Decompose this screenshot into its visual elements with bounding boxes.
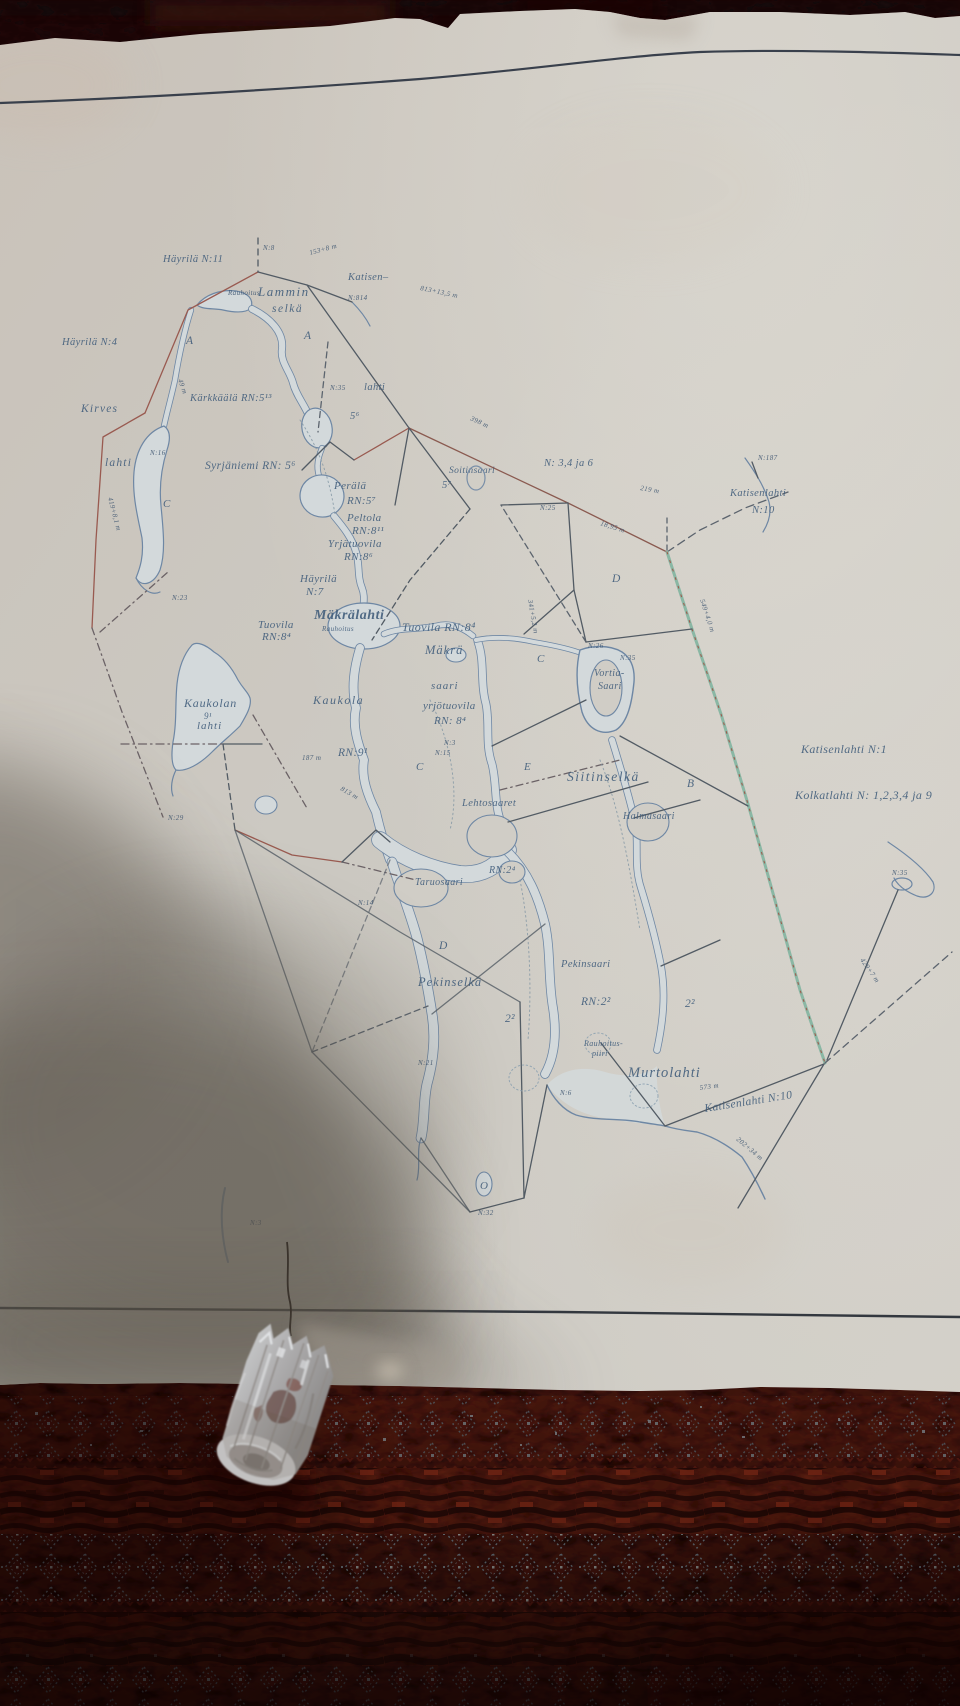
svg-text:Pekinsaari: Pekinsaari (560, 959, 611, 970)
svg-text:Pekinselkä: Pekinselkä (417, 975, 482, 989)
svg-text:Murtolahti: Murtolahti (627, 1065, 701, 1081)
svg-text:Tuovila: Tuovila (258, 619, 294, 631)
svg-text:Kaukola: Kaukola (312, 693, 364, 707)
svg-text:N:3: N:3 (443, 739, 456, 747)
svg-text:D: D (438, 940, 448, 952)
svg-text:E: E (523, 761, 531, 773)
svg-text:RN:5⁷: RN:5⁷ (346, 495, 376, 507)
svg-text:lahti: lahti (197, 720, 222, 732)
svg-text:Vortia-: Vortia- (594, 668, 625, 679)
svg-text:Perälä: Perälä (333, 480, 366, 492)
svg-text:187 m: 187 m (302, 754, 321, 762)
svg-text:N:14: N:14 (357, 899, 374, 907)
svg-text:Kolkatlahti N: 1,2,3,4 ja 9: Kolkatlahti N: 1,2,3,4 ja 9 (794, 788, 932, 802)
svg-text:Katisen–: Katisen– (347, 272, 389, 283)
svg-text:C: C (537, 653, 545, 665)
svg-text:C: C (416, 761, 424, 773)
svg-text:Lehtosaaret: Lehtosaaret (461, 798, 517, 809)
svg-text:piiri: piiri (591, 1049, 608, 1058)
svg-text:RN:2²: RN:2² (580, 996, 611, 1008)
svg-text:RN:8⁶: RN:8⁶ (343, 551, 373, 563)
svg-text:N:25: N:25 (539, 504, 556, 512)
svg-text:RN:8⁴: RN:8⁴ (261, 631, 291, 643)
svg-text:C: C (163, 498, 171, 510)
svg-text:Taruosaari: Taruosaari (415, 877, 463, 888)
svg-text:N:814: N:814 (347, 294, 368, 302)
svg-text:saari: saari (431, 680, 459, 692)
svg-text:Syrjäniemi RN: 5⁶: Syrjäniemi RN: 5⁶ (205, 460, 296, 472)
svg-text:Lammin: Lammin (257, 284, 310, 299)
svg-text:lahti: lahti (364, 382, 385, 393)
svg-text:Siitinselkä: Siitinselkä (567, 769, 640, 784)
svg-text:Kirves: Kirves (80, 403, 118, 415)
svg-text:Kaukolan: Kaukolan (183, 696, 237, 710)
svg-text:2²: 2² (505, 1013, 515, 1025)
svg-text:N:8: N:8 (262, 244, 275, 252)
svg-text:Häyrilä N:4: Häyrilä N:4 (61, 337, 118, 348)
svg-text:Katisenlahti: Katisenlahti (729, 488, 786, 499)
svg-text:N:26: N:26 (587, 642, 604, 650)
svg-text:N:7: N:7 (305, 586, 324, 598)
svg-text:yrjötuovila: yrjötuovila (422, 700, 476, 712)
svg-text:Mäkrälahti: Mäkrälahti (313, 608, 384, 623)
svg-text:N:32: N:32 (477, 1209, 494, 1217)
svg-text:B: B (687, 778, 694, 790)
svg-text:Halmasaari: Halmasaari (622, 811, 675, 822)
svg-text:N:29: N:29 (167, 814, 184, 822)
svg-text:N:35: N:35 (891, 869, 908, 877)
svg-text:Mäkrä: Mäkrä (424, 643, 463, 657)
svg-text:Häyrilä: Häyrilä (299, 573, 337, 585)
svg-text:Kärkkäälä RN:5¹³: Kärkkäälä RN:5¹³ (189, 393, 272, 404)
svg-text:Häyrilä N:11: Häyrilä N:11 (162, 254, 223, 265)
svg-text:A: A (185, 335, 194, 347)
svg-text:5⁷: 5⁷ (442, 480, 452, 491)
svg-text:5⁶: 5⁶ (350, 411, 360, 422)
svg-text:D: D (611, 573, 621, 585)
svg-text:N: 3,4 ja 6: N: 3,4 ja 6 (543, 458, 594, 469)
svg-text:lahti: lahti (105, 457, 132, 469)
svg-text:Rauhoitus: Rauhoitus (321, 625, 354, 633)
svg-text:Rauhoitus: Rauhoitus (227, 289, 260, 297)
svg-text:N:16: N:16 (149, 449, 166, 457)
svg-text:N:35: N:35 (329, 384, 346, 392)
svg-text:RN:8¹¹: RN:8¹¹ (351, 525, 384, 537)
svg-text:selkä: selkä (272, 303, 303, 315)
svg-text:N:10: N:10 (751, 505, 775, 516)
svg-text:Katisenlahti N:1: Katisenlahti N:1 (800, 742, 887, 756)
svg-text:N:23: N:23 (171, 594, 188, 602)
svg-text:RN:9¹: RN:9¹ (337, 747, 368, 759)
svg-text:Peltola: Peltola (346, 512, 382, 524)
svg-text:Tuovila RN:8⁴: Tuovila RN:8⁴ (402, 620, 476, 634)
svg-text:N:35: N:35 (619, 654, 636, 662)
svg-text:N:187: N:187 (757, 454, 778, 462)
svg-text:2²: 2² (685, 998, 695, 1010)
svg-text:Saari: Saari (598, 681, 622, 692)
svg-text:N:6: N:6 (559, 1089, 572, 1097)
svg-text:RN:2⁴: RN:2⁴ (488, 865, 516, 876)
svg-text:Rauhoitus-: Rauhoitus- (583, 1039, 623, 1048)
svg-text:N:15: N:15 (434, 749, 451, 757)
svg-text:O: O (480, 1180, 488, 1192)
svg-text:RN: 8⁴: RN: 8⁴ (433, 715, 466, 727)
svg-text:Yrjätuovila: Yrjätuovila (328, 538, 382, 550)
svg-text:A: A (303, 330, 312, 342)
